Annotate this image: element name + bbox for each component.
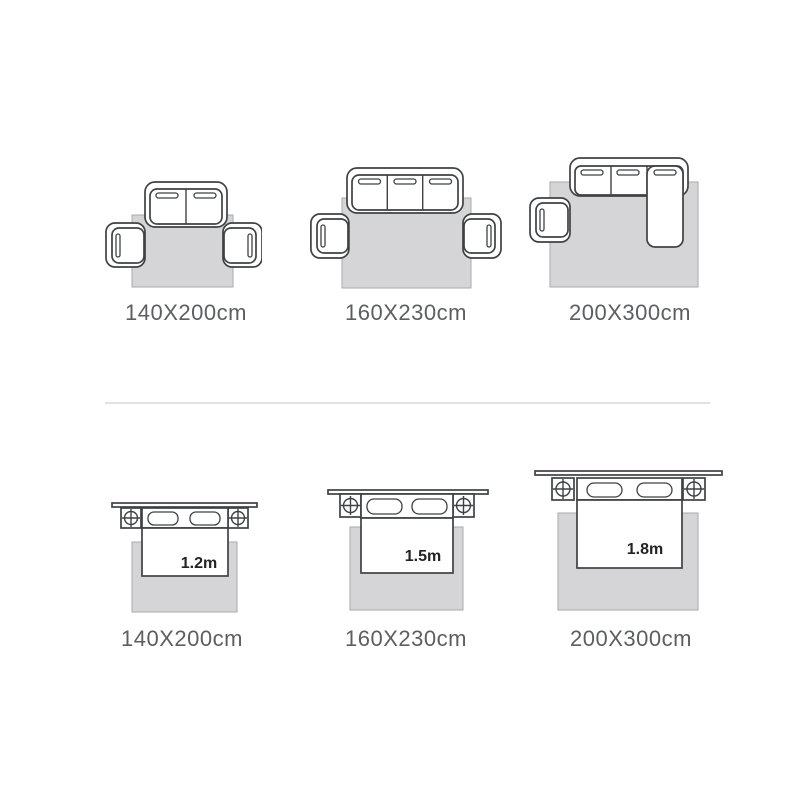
size-label: 140X200cm — [94, 300, 278, 326]
nightstand-right — [683, 478, 705, 500]
three-seat-sofa — [347, 168, 463, 213]
headboard — [535, 471, 722, 475]
double-bed: 1.5m — [361, 494, 453, 573]
armchair-right — [463, 214, 501, 258]
sofa-size-card-200x300: 200X300cm — [528, 152, 732, 330]
size-label: 140X200cm — [90, 626, 274, 652]
size-label: 200X300cm — [528, 300, 732, 326]
armchair-left — [530, 198, 570, 242]
armchair-left — [106, 223, 145, 267]
nightstand-right — [228, 508, 248, 528]
double-bed: 1.8m — [577, 478, 682, 568]
nightstand-left — [121, 508, 141, 528]
bed-size-card-160x230: 1.5m 160X230cm — [314, 460, 498, 650]
loveseat-sofa — [145, 182, 227, 227]
size-label: 160X230cm — [314, 626, 498, 652]
double-bed-nightstands-on-rug-icon: 1.2m — [105, 498, 265, 618]
armchair-left — [311, 214, 349, 258]
chaise-section — [647, 166, 683, 247]
bed-size-card-140x200: 1.2m 140X200cm — [90, 460, 274, 650]
sectional-sofa-armchair-on-rug-icon — [528, 156, 708, 291]
size-label: 160X230cm — [310, 300, 502, 326]
sofa-size-card-160x230: 160X230cm — [310, 152, 502, 330]
nightstand-left — [552, 478, 574, 500]
headboard — [112, 503, 257, 507]
three-seat-sofa-two-armchairs-on-rug-icon — [310, 164, 505, 294]
double-bed-nightstands-on-rug-icon: 1.5m — [320, 486, 495, 614]
nightstand-left — [340, 494, 361, 517]
double-bed-nightstands-on-rug-icon: 1.8m — [530, 466, 730, 616]
size-label: 200X300cm — [529, 626, 733, 652]
armchair-right — [223, 223, 262, 267]
bed-width-label: 1.8m — [627, 541, 663, 558]
double-bed: 1.2m — [142, 508, 228, 576]
rug-size-guide: 140X200cm — [0, 0, 800, 800]
bed-width-label: 1.2m — [181, 555, 217, 572]
nightstand-right — [453, 494, 474, 517]
bed-size-card-200x300: 1.8m 200X300cm — [529, 460, 733, 650]
section-divider — [105, 402, 710, 404]
bed-width-label: 1.5m — [405, 548, 441, 565]
sofa-size-card-140x200: 140X200cm — [94, 152, 278, 330]
loveseat-sofa-two-armchairs-on-rug-icon — [102, 178, 262, 293]
